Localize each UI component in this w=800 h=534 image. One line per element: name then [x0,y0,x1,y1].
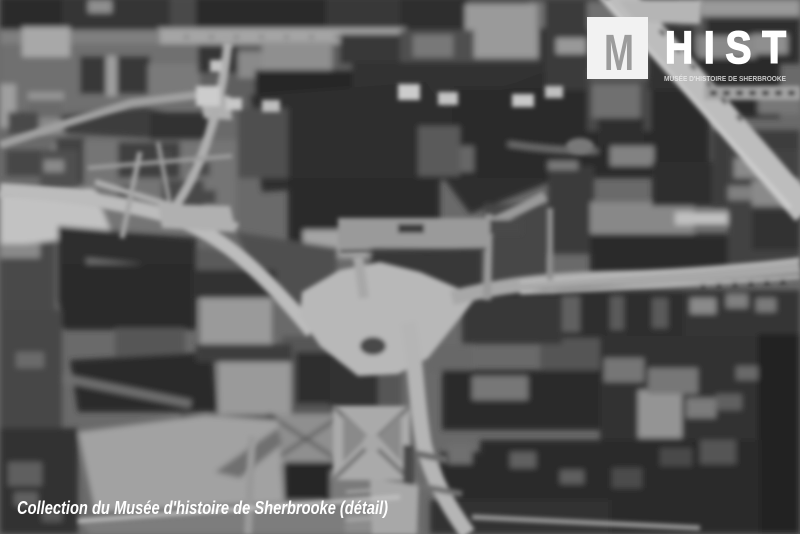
svg-text:Collection du Musée d'histoire: Collection du Musée d'histoire de Sherbr… [17,497,388,518]
svg-text:M: M [604,24,634,81]
svg-text:MUSÉE D'HISTOIRE DE SHERBROOKE: MUSÉE D'HISTOIRE DE SHERBROOKE [664,74,786,83]
svg-text:H I S T: H I S T [665,22,786,73]
